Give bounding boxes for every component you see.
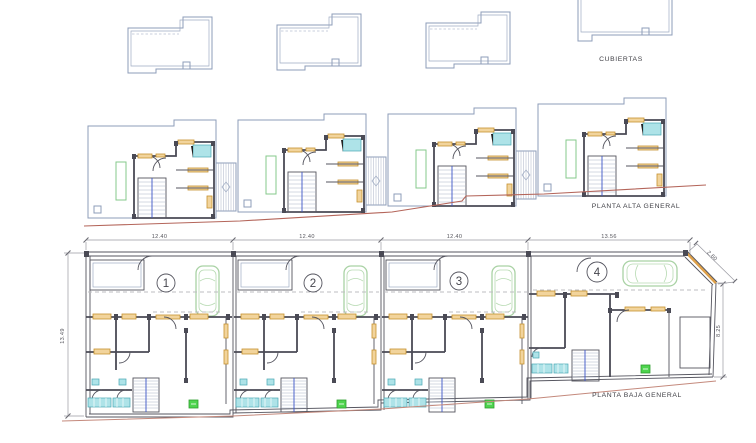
ground-floor-label: PLANTA BAJA GENERAL xyxy=(592,392,682,399)
deck-strip-1 xyxy=(216,163,236,211)
utility-marker-icon xyxy=(641,365,650,373)
floor-plan-drawing: CUBIERTAS PLANTA ALTA GENERAL xyxy=(0,0,756,443)
door-arc-icon xyxy=(577,258,591,272)
roof-plan-2 xyxy=(277,14,361,70)
car-icon xyxy=(623,261,677,286)
upper-floor-unit-4 xyxy=(538,98,666,197)
svg-text:12.40: 12.40 xyxy=(152,234,168,240)
roofs-label: CUBIERTAS xyxy=(599,56,643,63)
deck-strip-2 xyxy=(366,157,386,205)
svg-text:2: 2 xyxy=(310,278,316,290)
dimension-left: 13.49 xyxy=(60,251,84,419)
svg-text:8.25: 8.25 xyxy=(716,325,722,337)
unit-number-2: 2 xyxy=(304,274,322,292)
svg-text:1: 1 xyxy=(163,278,169,290)
svg-text:13.56: 13.56 xyxy=(601,234,617,240)
ground-floor-unit-4 xyxy=(529,258,710,381)
upper-floor-row: PLANTA ALTA GENERAL xyxy=(84,98,706,226)
upper-floor-unit-2 xyxy=(238,114,366,213)
ground-floor-unit-1 xyxy=(86,256,232,412)
roof-plans-row: CUBIERTAS xyxy=(128,0,672,73)
roof-plan-4 xyxy=(578,0,672,41)
upper-floor-unit-1 xyxy=(88,120,216,219)
svg-text:13.49: 13.49 xyxy=(60,328,66,344)
sink-icon xyxy=(533,352,539,358)
upper-floor-unit-3 xyxy=(388,108,516,207)
ground-floor-row: 1 2 3 4 12.40 12.40 12.40 13.56 13.49 xyxy=(60,234,737,421)
bathtub-icon xyxy=(532,364,568,373)
svg-text:12.40: 12.40 xyxy=(447,234,463,240)
chimney-icon xyxy=(642,28,649,35)
svg-text:4: 4 xyxy=(594,267,601,279)
roof-plan-1 xyxy=(128,17,212,73)
porch-outline xyxy=(680,317,710,368)
floor-plan-sheet: CUBIERTAS PLANTA ALTA GENERAL xyxy=(0,0,756,443)
unit-number-1: 1 xyxy=(157,274,175,292)
deck-strip-3 xyxy=(516,151,536,199)
door-arc-icon xyxy=(617,310,629,322)
svg-text:3: 3 xyxy=(456,276,462,288)
svg-text:12.40: 12.40 xyxy=(299,234,315,240)
unit-number-3: 3 xyxy=(450,272,468,290)
roof-plan-3 xyxy=(426,12,510,68)
upper-floor-label: PLANTA ALTA GENERAL xyxy=(592,203,680,210)
ground-floor-unit-2 xyxy=(234,256,380,412)
unit-number-4: 4 xyxy=(587,262,607,282)
svg-text:2.60: 2.60 xyxy=(705,250,718,263)
